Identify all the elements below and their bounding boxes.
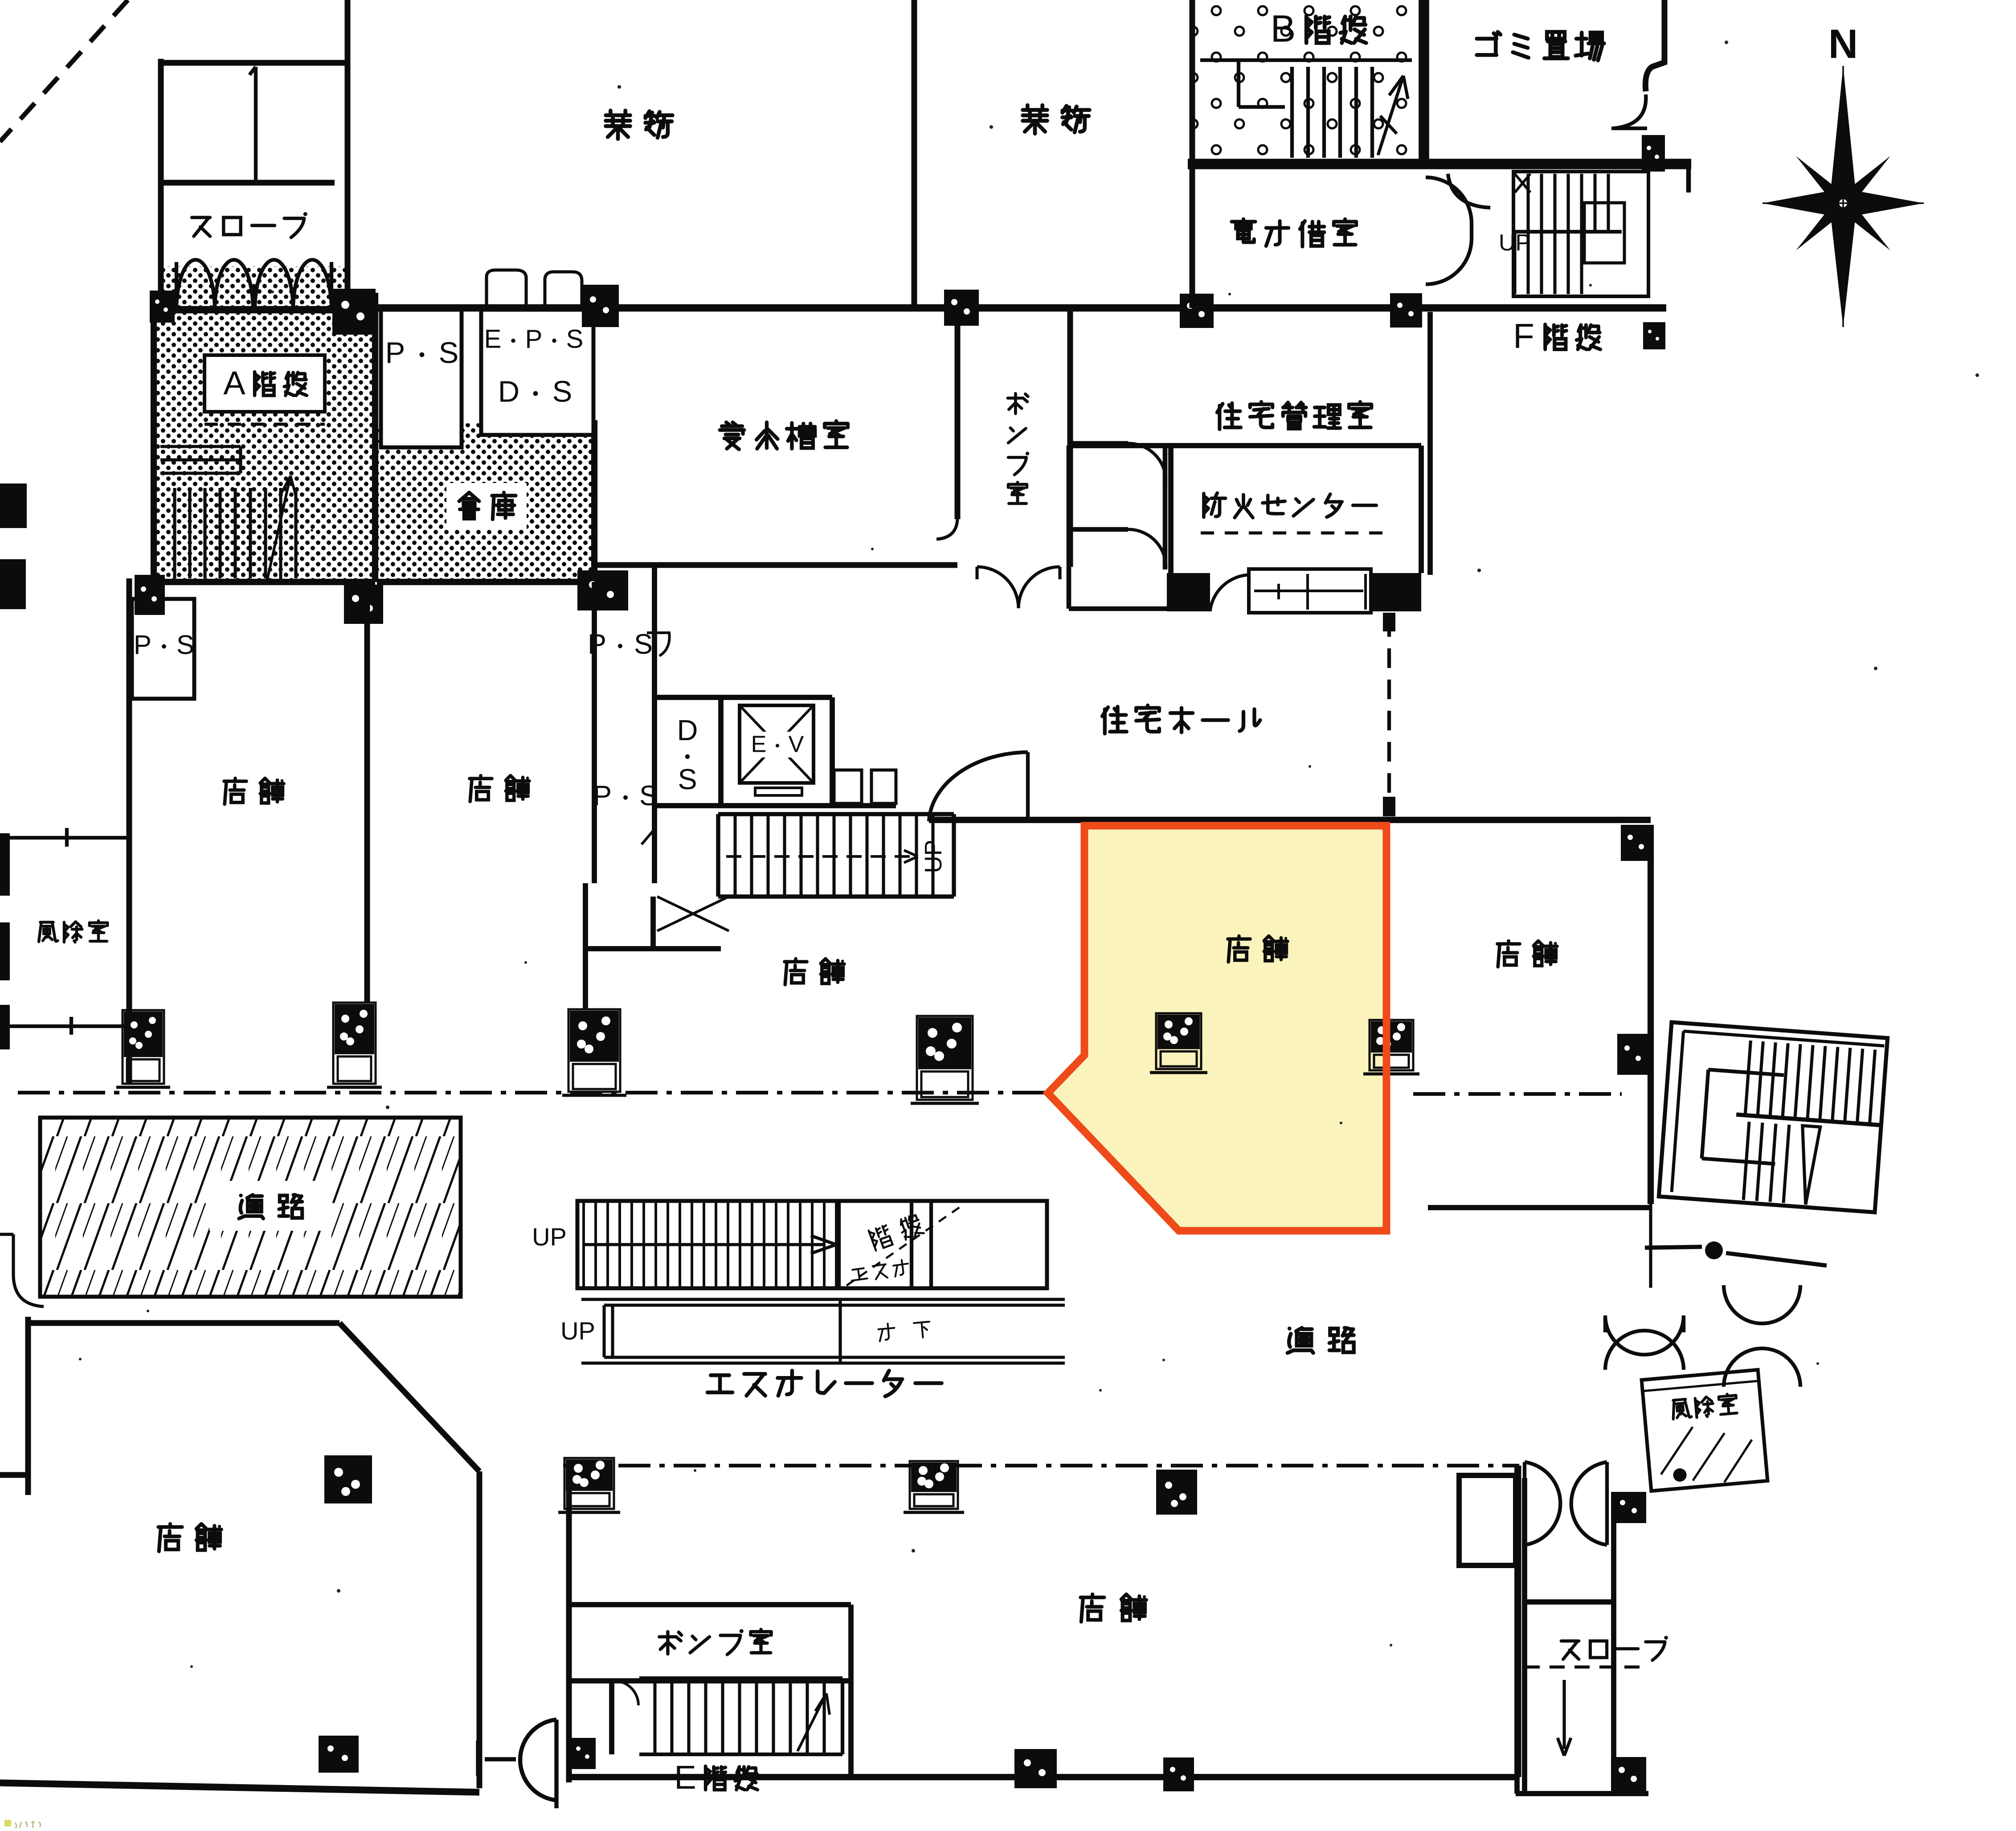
svg-text:S: S <box>678 763 697 795</box>
svg-text:B: B <box>1271 8 1296 50</box>
svg-text:E: E <box>674 1759 696 1796</box>
svg-text:P: P <box>525 325 543 354</box>
svg-text:N: N <box>1828 21 1858 67</box>
svg-text:E: E <box>484 325 502 354</box>
svg-text:F: F <box>1513 316 1534 356</box>
svg-text:E: E <box>751 732 767 758</box>
svg-text:V: V <box>789 732 804 758</box>
svg-text:S: S <box>439 336 459 370</box>
svg-text:D: D <box>677 714 698 746</box>
svg-text:UP: UP <box>1499 230 1531 256</box>
svg-text:A: A <box>223 365 245 401</box>
svg-text:P: P <box>588 629 606 660</box>
svg-text:UP: UP <box>532 1223 567 1251</box>
svg-text:P: P <box>593 780 612 811</box>
svg-text:S: S <box>552 375 572 409</box>
svg-text:P: P <box>134 630 151 659</box>
svg-text:D: D <box>498 375 519 409</box>
svg-text:P: P <box>385 336 405 370</box>
svg-text:S: S <box>176 630 194 659</box>
svg-text:UP: UP <box>920 840 947 873</box>
svg-text:S: S <box>566 325 584 354</box>
svg-text:UP: UP <box>560 1317 595 1345</box>
